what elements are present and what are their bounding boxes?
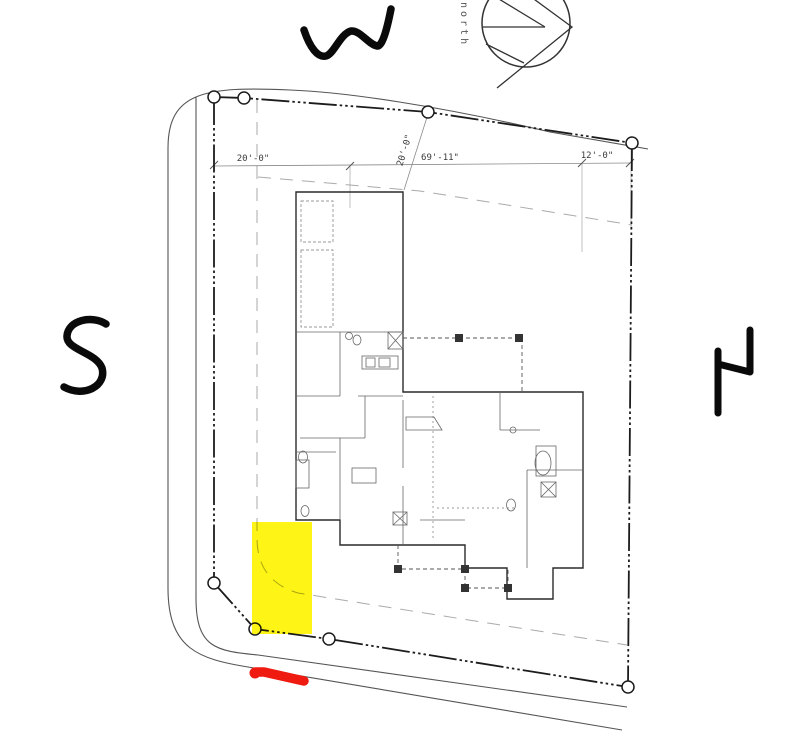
outer-curb-line — [168, 89, 648, 730]
house-exterior-walls — [296, 192, 583, 599]
dimension-label-right: 12'-0" — [581, 151, 614, 161]
porch-post — [461, 584, 469, 592]
site-plan-page: 20'-0" 20'-0" 69'-11" 12'-0" — [0, 0, 789, 750]
plumbing-fixtures — [299, 332, 557, 525]
hand-drawn-letters — [64, 9, 750, 413]
north-arrow-icon — [482, 0, 572, 88]
porch-post — [504, 584, 512, 592]
setback-lines — [257, 100, 632, 645]
survey-marker — [626, 137, 638, 149]
toilet — [299, 451, 308, 463]
sink — [346, 333, 353, 340]
survey-marker — [323, 633, 335, 645]
road-curb-lines — [168, 89, 648, 730]
bathtub — [535, 451, 551, 475]
interior-walls — [296, 332, 583, 568]
yellow-highlight-annotation — [252, 522, 312, 634]
dimension-lines — [210, 114, 634, 252]
site-plan-svg: 20'-0" 20'-0" 69'-11" 12'-0" — [0, 0, 789, 750]
survey-marker — [422, 106, 434, 118]
porch-post — [515, 334, 523, 342]
survey-marker — [238, 92, 250, 104]
toilet — [301, 506, 309, 517]
toilet — [507, 499, 516, 511]
dimension-labels: 20'-0" 20'-0" 69'-11" 12'-0" — [237, 133, 614, 167]
porch-post — [455, 334, 463, 342]
porch-post — [394, 565, 402, 573]
dimension-label-middle: 69'-11" — [421, 153, 459, 163]
house-floor-plan — [296, 192, 583, 599]
front-setback-line — [258, 177, 632, 225]
dimension-label-diagonal: 20'-0" — [396, 133, 415, 167]
hand-letter-w — [304, 9, 391, 56]
sink — [353, 335, 361, 345]
beam-lines — [433, 396, 515, 540]
north-label: north — [458, 2, 469, 47]
rear-porch — [403, 334, 523, 392]
hand-letter-s — [64, 320, 106, 392]
dimension-label-left: 20'-0" — [237, 154, 270, 164]
red-marker-annotation — [250, 668, 305, 682]
porch-post — [461, 565, 469, 573]
survey-marker — [208, 577, 220, 589]
survey-marker — [208, 91, 220, 103]
north-compass: north — [458, 0, 572, 88]
hand-letter-n — [718, 330, 750, 413]
boundary-north — [214, 97, 632, 143]
garage-dashed-outlines — [301, 201, 333, 327]
survey-marker — [622, 681, 634, 693]
